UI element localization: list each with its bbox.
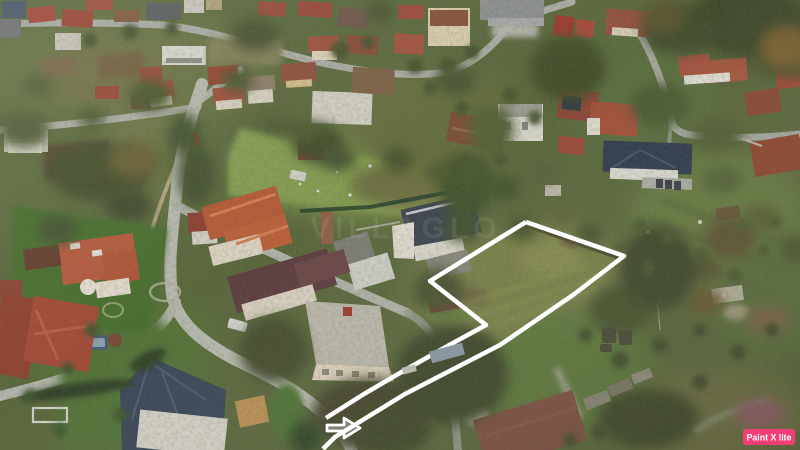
svg-text:Paint X lite: Paint X lite — [747, 433, 792, 443]
svg-text:VILLAGLO: VILLAGLO — [310, 212, 502, 245]
